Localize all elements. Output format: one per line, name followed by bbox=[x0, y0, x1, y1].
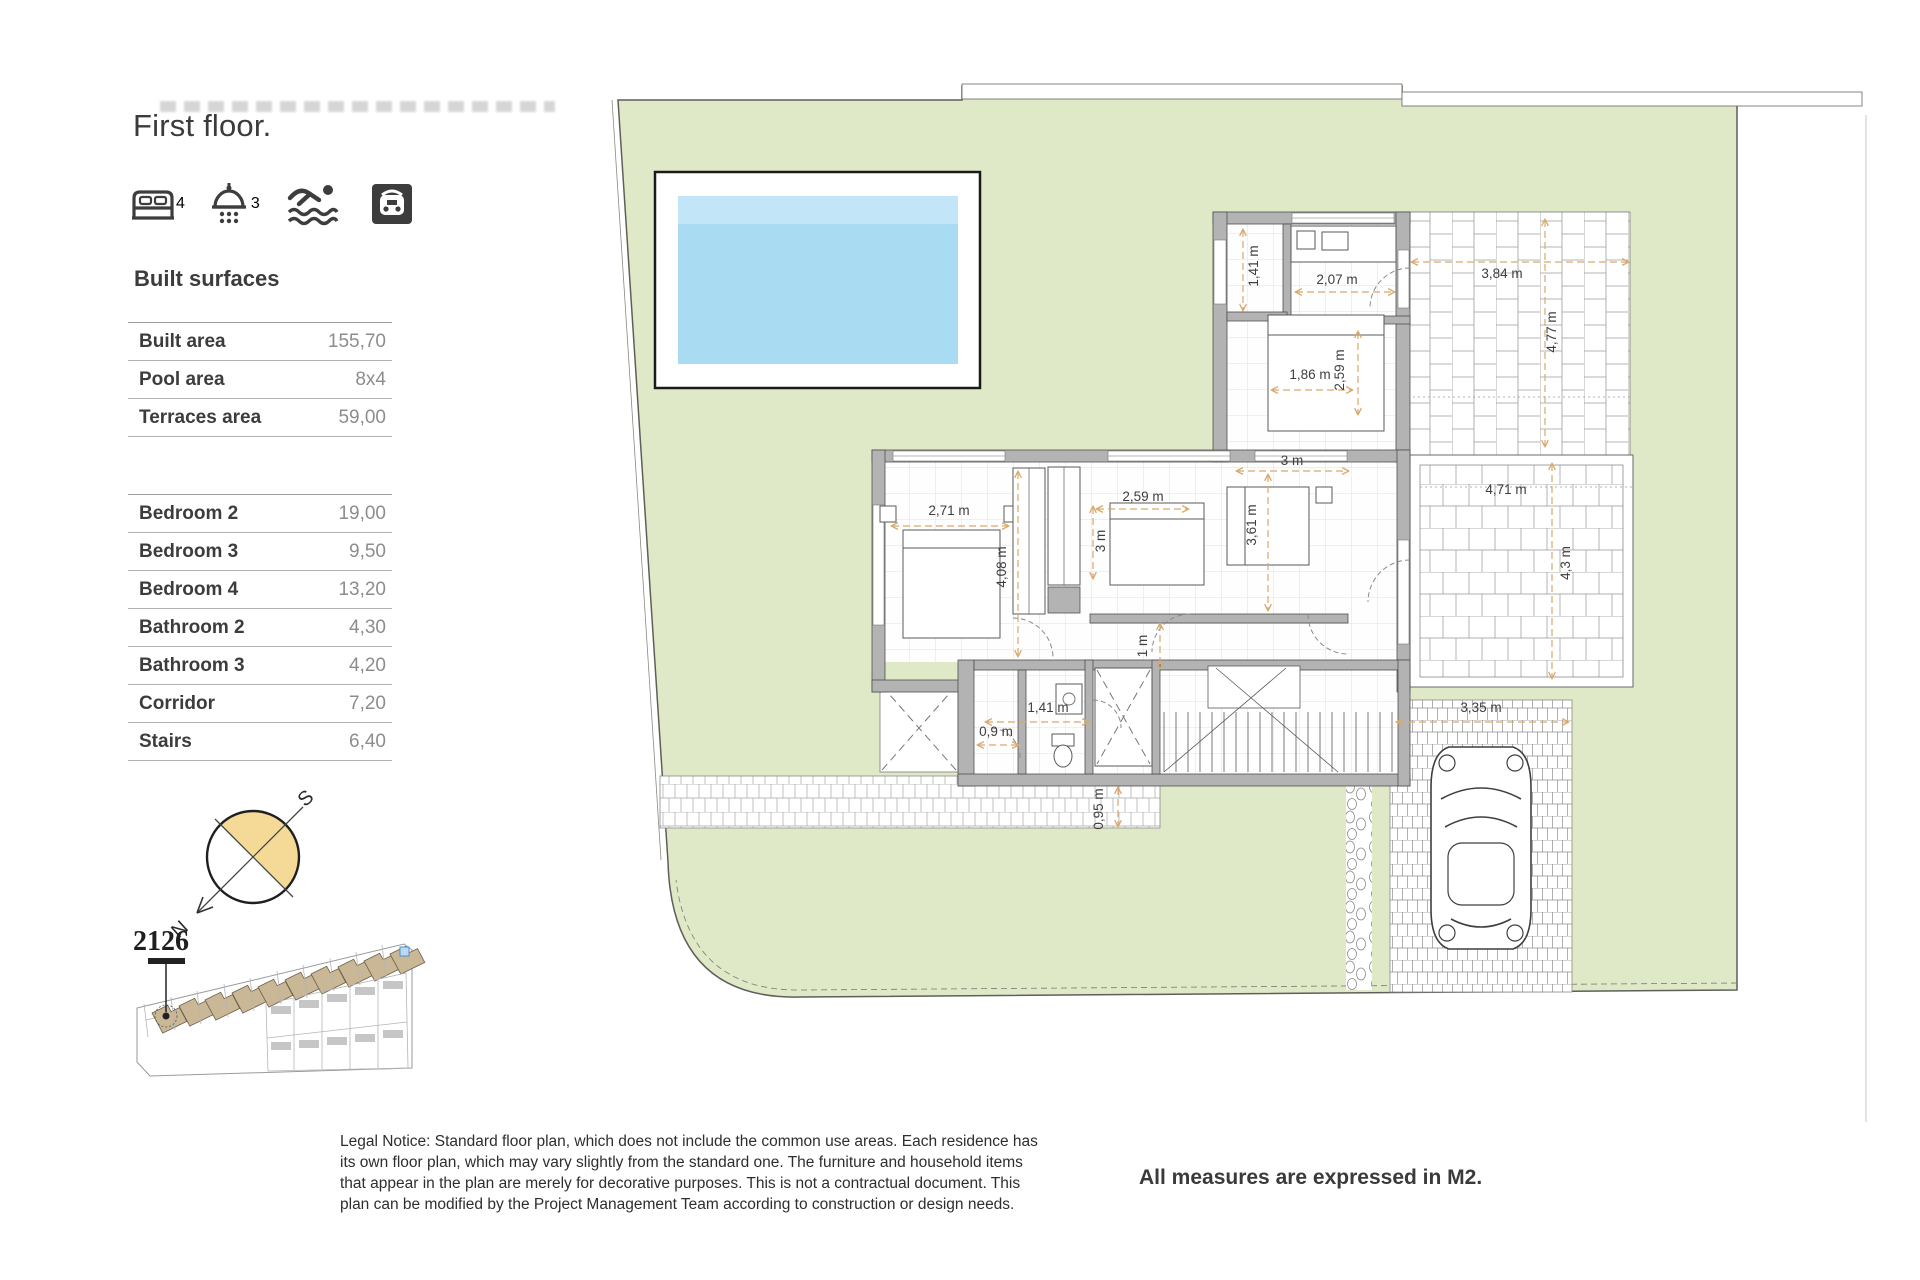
page: 1,41 m2,07 m3,84 m4,77 m1,86 m2,59 m3 m2… bbox=[0, 0, 1920, 1280]
row-value: 4,30 bbox=[349, 617, 386, 639]
compass: S N bbox=[167, 786, 318, 943]
pool bbox=[655, 172, 980, 388]
built-surfaces-heading: Built surfaces bbox=[134, 266, 280, 292]
table-row: Bedroom 413,20 bbox=[128, 571, 392, 609]
garage-icon bbox=[370, 182, 414, 226]
row-label: Terraces area bbox=[139, 407, 261, 429]
dimension-label: 1,41 m bbox=[1027, 700, 1068, 715]
bathroom-count: 3 bbox=[251, 195, 260, 213]
measures-note: All measures are expressed in M2. bbox=[1139, 1166, 1482, 1190]
dimension-label: 2,07 m bbox=[1316, 272, 1357, 287]
unit-number: 2126 bbox=[133, 926, 189, 957]
table-row: Built area155,70 bbox=[128, 323, 392, 361]
dimension-label: 3 m bbox=[1281, 453, 1304, 468]
row-value: 19,00 bbox=[338, 503, 386, 525]
patio-lightwell bbox=[880, 684, 958, 772]
dimension-label: 2,71 m bbox=[928, 503, 969, 518]
row-value: 9,50 bbox=[349, 541, 386, 563]
row-label: Bedroom 2 bbox=[139, 503, 238, 525]
dimension-label: 1,86 m bbox=[1289, 367, 1330, 382]
boundary-step-band bbox=[962, 84, 1402, 99]
row-label: Bedroom 4 bbox=[139, 579, 238, 601]
table-row: Bedroom 219,00 bbox=[128, 495, 392, 533]
dimension-label: 3,61 m bbox=[1244, 504, 1259, 545]
table-row: Terraces area59,00 bbox=[128, 399, 392, 437]
row-value: 155,70 bbox=[328, 331, 386, 353]
dimension-label: 2,59 m bbox=[1332, 349, 1347, 390]
dimension-label: 2,59 m bbox=[1122, 489, 1163, 504]
shower-icon bbox=[207, 181, 251, 227]
dimension-label: 4,3 m bbox=[1558, 546, 1573, 580]
car bbox=[1431, 747, 1531, 949]
boundary-step-band-2 bbox=[1402, 92, 1862, 106]
bedroom-count: 4 bbox=[176, 195, 185, 213]
feature-icons-row: 4 3 bbox=[130, 181, 414, 227]
row-label: Pool area bbox=[139, 369, 225, 391]
row-label: Bathroom 2 bbox=[139, 617, 245, 639]
bed-icon bbox=[130, 184, 176, 224]
pebble-strip bbox=[1346, 782, 1372, 990]
dimension-label: 0,95 m bbox=[1091, 788, 1106, 829]
legal-notice: Legal Notice: Standard floor plan, which… bbox=[340, 1131, 1046, 1215]
rooms-table: Bedroom 219,00Bedroom 39,50Bedroom 413,2… bbox=[128, 494, 392, 761]
table-row: Bathroom 34,20 bbox=[128, 647, 392, 685]
row-value: 59,00 bbox=[338, 407, 386, 429]
table-row: Bedroom 39,50 bbox=[128, 533, 392, 571]
table-row: Bathroom 24,30 bbox=[128, 609, 392, 647]
row-label: Corridor bbox=[139, 693, 215, 715]
row-value: 4,20 bbox=[349, 655, 386, 677]
page-title: First floor. bbox=[133, 108, 271, 144]
dimension-label: 3 m bbox=[1093, 530, 1108, 553]
row-value: 13,20 bbox=[338, 579, 386, 601]
row-label: Bathroom 3 bbox=[139, 655, 245, 677]
row-value: 6,40 bbox=[349, 731, 386, 753]
row-value: 7,20 bbox=[349, 693, 386, 715]
dimension-label: 1 m bbox=[1135, 635, 1150, 658]
dimension-label: 0,9 m bbox=[979, 724, 1013, 739]
row-label: Stairs bbox=[139, 731, 192, 753]
compass-south-label: S bbox=[294, 786, 319, 811]
dimension-label: 4,77 m bbox=[1544, 311, 1559, 352]
dimension-label: 3,84 m bbox=[1481, 266, 1522, 281]
site-plan: 2126 bbox=[133, 926, 426, 1076]
row-value: 8x4 bbox=[355, 369, 386, 391]
built-surfaces-table: Built area155,70Pool area8x4Terraces are… bbox=[128, 322, 392, 437]
terrace-top bbox=[1408, 212, 1630, 455]
dimension-label: 4,71 m bbox=[1485, 482, 1526, 497]
dimension-label: 4,08 m bbox=[994, 546, 1009, 587]
table-row: Stairs6,40 bbox=[128, 723, 392, 761]
dimension-label: 1,41 m bbox=[1246, 245, 1261, 286]
row-label: Built area bbox=[139, 331, 226, 353]
table-row: Pool area8x4 bbox=[128, 361, 392, 399]
swim-icon bbox=[286, 182, 340, 226]
table-row: Corridor7,20 bbox=[128, 685, 392, 723]
skylight-box bbox=[1095, 668, 1152, 766]
site-pool-marker bbox=[400, 947, 409, 956]
dimension-label: 3,35 m bbox=[1460, 700, 1501, 715]
row-label: Bedroom 3 bbox=[139, 541, 238, 563]
